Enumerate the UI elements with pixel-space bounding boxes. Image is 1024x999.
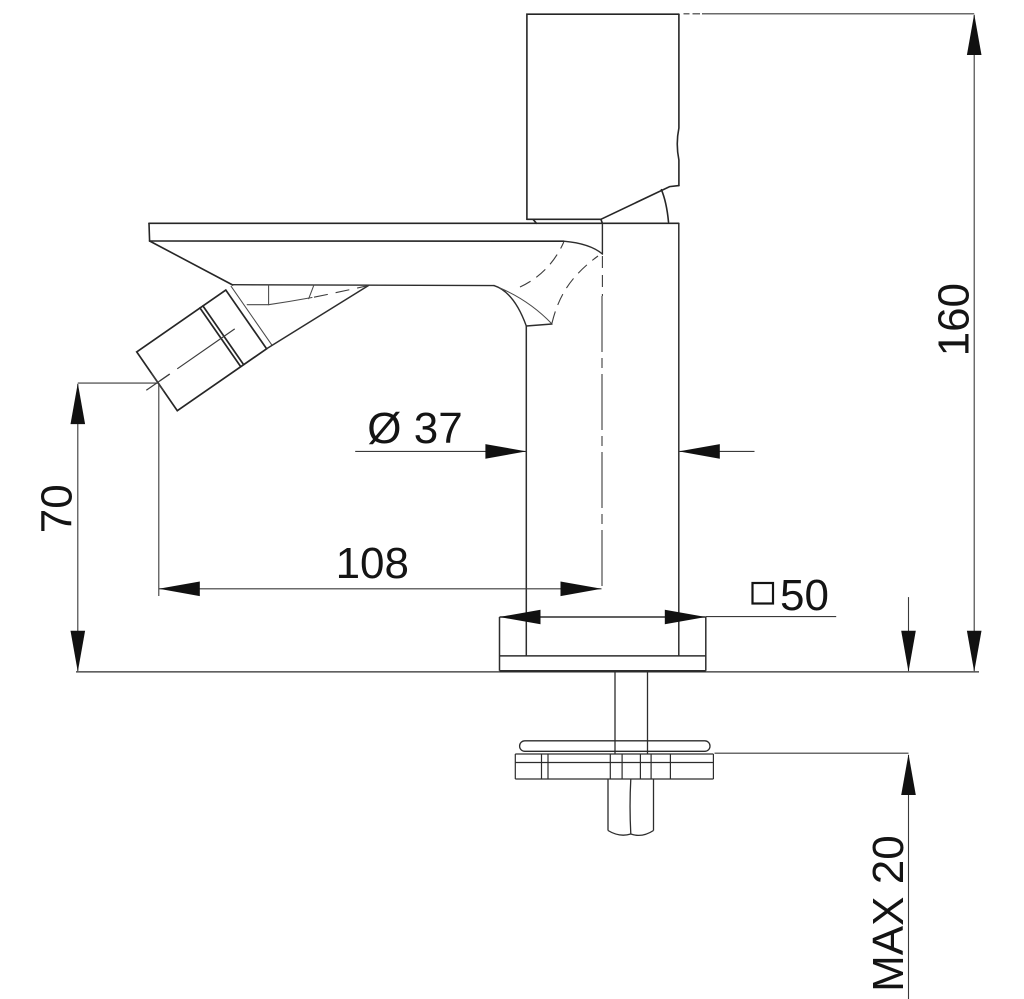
svg-text:Ø 37: Ø 37 (367, 404, 462, 453)
svg-text:160: 160 (929, 283, 978, 356)
svg-text:108: 108 (336, 539, 409, 588)
svg-text:MAX 20: MAX 20 (864, 835, 913, 992)
svg-text:50: 50 (780, 571, 829, 620)
svg-text:70: 70 (32, 484, 81, 533)
